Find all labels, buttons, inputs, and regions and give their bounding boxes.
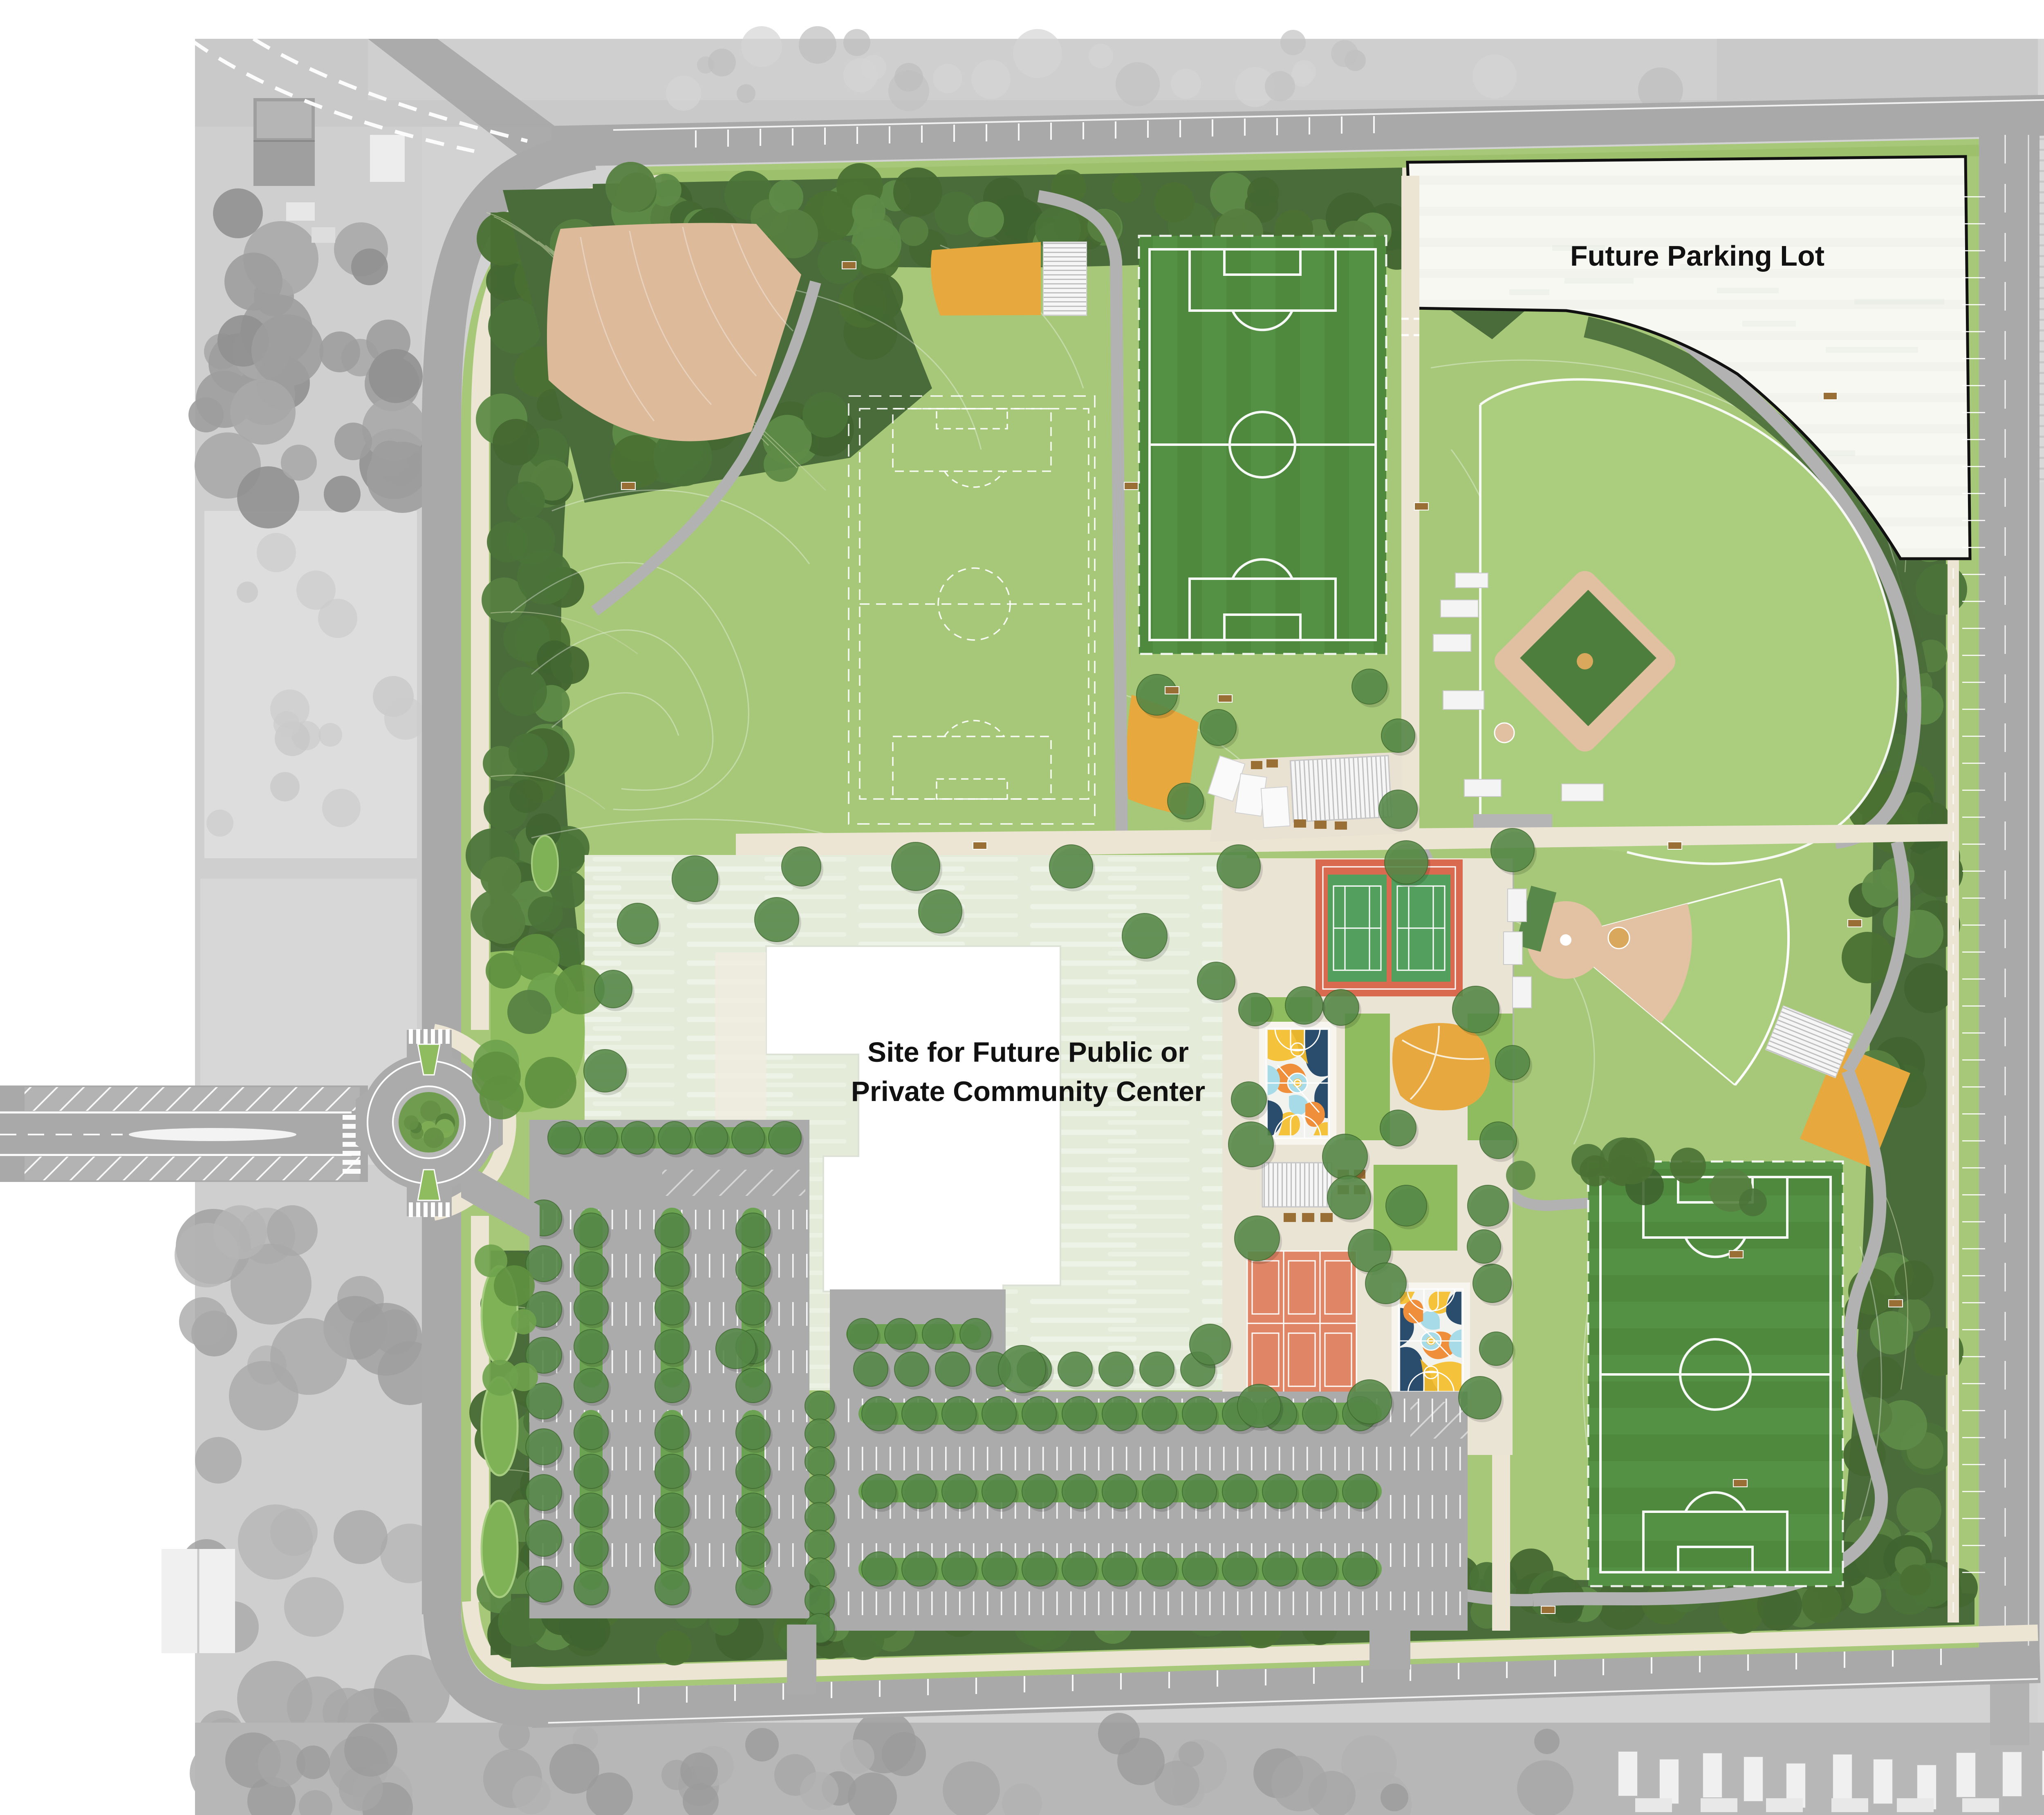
svg-text:Private Community Center: Private Community Center: [851, 1076, 1206, 1107]
svg-text:Site for Future Public or: Site for Future Public or: [867, 1036, 1189, 1068]
svg-text:Future Parking Lot: Future Parking Lot: [1570, 240, 1824, 272]
